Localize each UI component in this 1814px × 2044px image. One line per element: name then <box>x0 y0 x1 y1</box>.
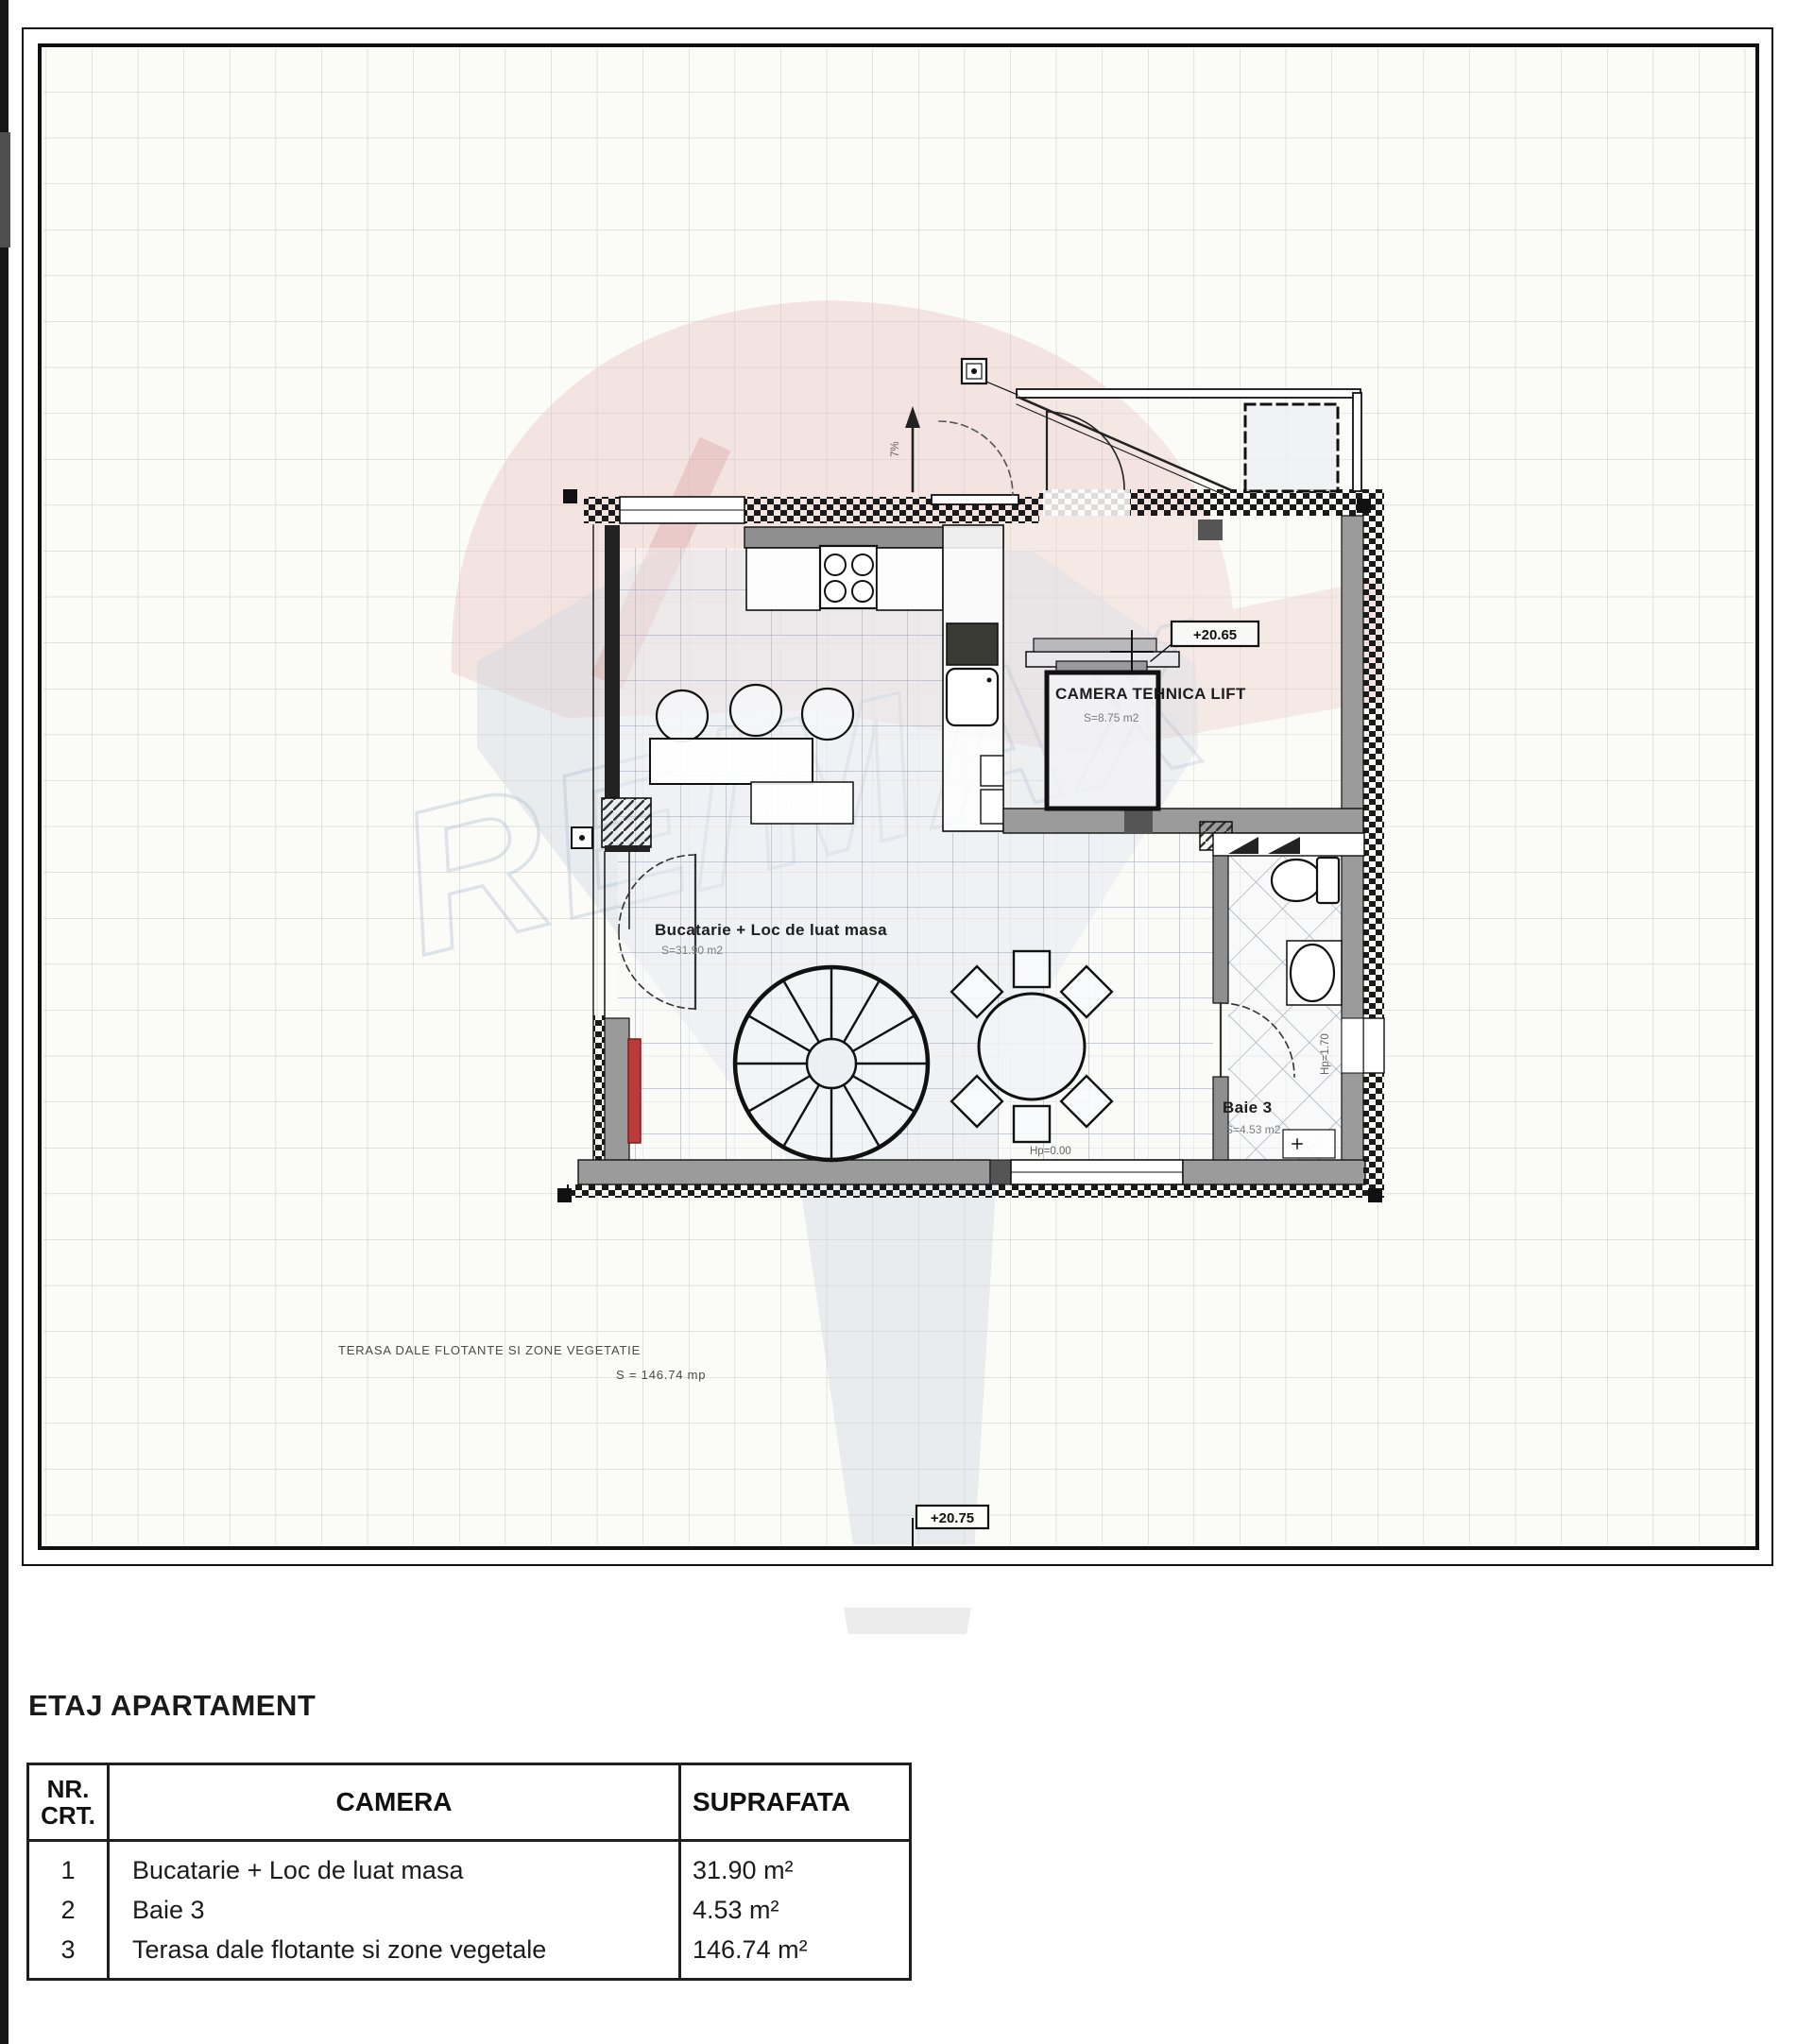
page-edge-strip-segment <box>0 132 10 247</box>
column-suprafata-values: 31.90 m² 4.53 m² 146.74 m² <box>680 1841 911 1980</box>
row-suprafata: 31.90 m² <box>693 1850 908 1890</box>
kitchen-island <box>650 739 813 784</box>
level-terrace-label: +20.75 <box>931 1510 974 1526</box>
room-area-camera-tehnica: S=8.75 m2 <box>1084 711 1139 724</box>
column-nr-values: 1 2 3 <box>28 1841 109 1980</box>
room-area-bucatarie: S=31.90 m2 <box>661 944 723 957</box>
row-camera: Terasa dale flotante si zone vegetale <box>132 1930 677 1969</box>
column-camera-values: Bucatarie + Loc de luat masa Baie 3 Tera… <box>109 1841 680 1980</box>
window-right <box>1363 1018 1384 1073</box>
row-camera: Bucatarie + Loc de luat masa <box>132 1850 677 1890</box>
wall-bottom <box>567 1160 1384 1198</box>
stool-icon <box>730 685 781 736</box>
room-label-camera-tehnica: CAMERA TEHNICA LIFT <box>1055 685 1246 703</box>
areas-table: NR. CRT. CAMERA SUPRAFATA 1 2 3 Bucatari… <box>26 1763 912 1981</box>
watermark-tip <box>844 1608 971 1634</box>
row-nr: 1 <box>30 1850 106 1890</box>
terrace-area-label: S = 146.74 mp <box>616 1368 706 1382</box>
ramp-slope-label: 7% <box>890 441 901 457</box>
wall-hatch-left <box>602 798 651 847</box>
hp-floor-label: Hp=0.00 <box>1030 1146 1071 1157</box>
row-nr: 2 <box>30 1890 106 1930</box>
table-header-row: NR. CRT. CAMERA SUPRAFATA <box>28 1764 911 1841</box>
row-suprafata: 4.53 m² <box>693 1890 908 1930</box>
sink-drainer-icon <box>947 623 998 665</box>
round-table-icon <box>979 994 1085 1099</box>
counter-right <box>877 548 943 610</box>
room-label-bucatarie: Bucatarie + Loc de luat masa <box>655 921 887 939</box>
hp-window-label: Hp=1.70 <box>1320 1033 1331 1075</box>
header-suprafata: SUPRAFATA <box>680 1764 911 1841</box>
stool-icon <box>802 689 853 740</box>
stool-icon <box>657 690 708 741</box>
chair-icon <box>1014 1106 1050 1142</box>
washbasin-icon <box>1291 945 1334 1001</box>
row-camera: Baie 3 <box>132 1890 677 1930</box>
skylight-opening <box>1245 404 1338 491</box>
row-suprafata: 146.74 m² <box>693 1930 908 1969</box>
chair-icon <box>1014 951 1050 987</box>
header-nr-crt: NR. CRT. <box>28 1764 109 1841</box>
legend-section: ETAJ APARTAMENT NR. CRT. CAMERA SUPRAFAT… <box>0 1634 1814 2044</box>
room-label-baie: Baie 3 <box>1223 1099 1273 1116</box>
toilet-icon <box>1272 860 1321 901</box>
header-camera: CAMERA <box>109 1764 680 1841</box>
sink-basin-icon <box>947 669 998 725</box>
section-title: ETAJ APARTAMENT <box>28 1689 316 1723</box>
red-marker-bar <box>628 1039 641 1143</box>
counter-left <box>746 548 820 610</box>
spiral-staircase <box>735 967 928 1160</box>
room-area-baie: S=4.53 m2 <box>1225 1123 1281 1136</box>
floor-plan-svg: RE/MAX <box>0 0 1814 1634</box>
table-body-row: 1 2 3 Bucatarie + Loc de luat masa Baie … <box>28 1841 911 1980</box>
level-upper-label: +20.65 <box>1193 627 1237 643</box>
row-nr: 3 <box>30 1930 106 1969</box>
terrace-label: TERASA DALE FLOTANTE SI ZONE VEGETATIE <box>338 1343 641 1357</box>
